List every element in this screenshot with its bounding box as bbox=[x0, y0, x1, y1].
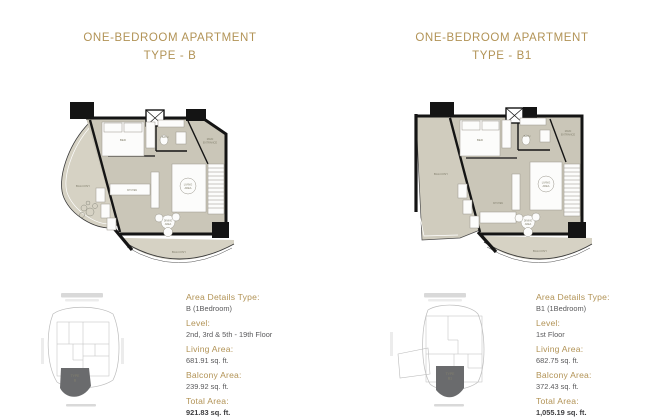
title-line1: ONE-BEDROOM APARTMENT bbox=[30, 30, 310, 48]
road-label-bar bbox=[41, 338, 44, 364]
detail-value: B (1Bedroom) bbox=[186, 304, 331, 313]
column-block bbox=[186, 109, 206, 121]
detail-value: 1st Floor bbox=[536, 330, 660, 339]
page-title-type-b1: ONE-BEDROOM APARTMENT TYPE - B1 bbox=[362, 30, 642, 66]
floor-plan-type-b1: BED BATH MAIN ENTRANCE LIVING AREA KITCH… bbox=[400, 92, 605, 284]
room-label-balcony-side: BALCONY bbox=[434, 172, 448, 176]
road-label-bar bbox=[66, 404, 96, 407]
room-label-living: LIVING bbox=[542, 181, 551, 185]
detail-group: Area Details Type: B1 (1Bedroom) bbox=[536, 292, 660, 313]
road-label-bar bbox=[434, 404, 464, 407]
road-label-bar bbox=[61, 293, 103, 298]
detail-group: Living Area: 682.75 sq. ft. bbox=[536, 344, 660, 365]
svg-text:AREA: AREA bbox=[165, 223, 172, 226]
detail-label: Balcony Area: bbox=[536, 370, 660, 380]
detail-group: Balcony Area: 372.43 sq. ft. bbox=[536, 370, 660, 391]
key-plan-type-b: TYPE B bbox=[33, 290, 133, 416]
detail-label: Total Area: bbox=[186, 396, 331, 406]
detail-label: Area Details Type: bbox=[186, 292, 331, 302]
title-line2: TYPE - B1 bbox=[362, 48, 642, 66]
brochure-page: ONE-BEDROOM APARTMENT TYPE - B bbox=[0, 0, 660, 418]
svg-text:ENTRANCE: ENTRANCE bbox=[561, 133, 576, 137]
detail-group-total: Total Area: 1,055.19 sq. ft. bbox=[536, 396, 660, 417]
area-details-type-b1: Area Details Type: B1 (1Bedroom) Level: … bbox=[536, 292, 660, 418]
detail-value: B1 (1Bedroom) bbox=[536, 304, 660, 313]
area-details-type-b: Area Details Type: B (1Bedroom) Level: 2… bbox=[186, 292, 331, 418]
road-label-bar bbox=[428, 299, 462, 302]
road-label-bar bbox=[390, 332, 393, 356]
detail-label: Living Area: bbox=[536, 344, 660, 354]
detail-value: 682.75 sq. ft. bbox=[536, 356, 660, 365]
title-line2: TYPE - B bbox=[30, 48, 310, 66]
column-block bbox=[70, 102, 94, 119]
detail-label: Area Details Type: bbox=[536, 292, 660, 302]
room-label-main-entrance: MAIN bbox=[565, 129, 572, 133]
title-line1: ONE-BEDROOM APARTMENT bbox=[362, 30, 642, 48]
room-label-bath: BATH bbox=[162, 135, 169, 139]
road-label-bar bbox=[424, 293, 466, 298]
detail-value: 239.92 sq. ft. bbox=[186, 382, 331, 391]
key-plan-type-b1: TYPE B1 bbox=[384, 290, 490, 416]
detail-group-total: Total Area: 921.83 sq. ft. bbox=[186, 396, 331, 417]
highlighted-unit: TYPE B1 bbox=[436, 366, 464, 397]
column-block bbox=[523, 107, 537, 118]
detail-group: Area Details Type: B (1Bedroom) bbox=[186, 292, 331, 313]
room-label-bath: BATH bbox=[524, 134, 531, 138]
keyplan-unit-label: TYPE bbox=[71, 374, 81, 378]
room-label-bed: BED bbox=[477, 138, 484, 142]
detail-value: 372.43 sq. ft. bbox=[536, 382, 660, 391]
detail-label: Level: bbox=[186, 318, 331, 328]
svg-text:AREA: AREA bbox=[542, 184, 549, 188]
detail-value: 1,055.19 sq. ft. bbox=[536, 408, 660, 417]
page-title-type-b: ONE-BEDROOM APARTMENT TYPE - B bbox=[30, 30, 310, 66]
svg-text:AREA: AREA bbox=[184, 186, 191, 190]
column-block bbox=[212, 222, 229, 238]
detail-value: 2nd, 3rd & 5th - 19th Floor bbox=[186, 330, 331, 339]
detail-value: 681.91 sq. ft. bbox=[186, 356, 331, 365]
svg-text:ENTRANCE: ENTRANCE bbox=[203, 141, 218, 145]
detail-label: Total Area: bbox=[536, 396, 660, 406]
room-label-kitchen: KITCHEN bbox=[127, 190, 137, 192]
room-label-balcony-bottom: BALCONY bbox=[533, 249, 547, 253]
detail-group: Level: 1st Floor bbox=[536, 318, 660, 339]
room-label-bed: BED bbox=[120, 138, 127, 142]
room-label-main-entrance: MAIN bbox=[207, 137, 214, 141]
svg-text:AREA: AREA bbox=[525, 223, 532, 226]
highlighted-unit: TYPE B bbox=[60, 368, 91, 397]
keyplan-unit-label: TYPE bbox=[446, 372, 456, 376]
detail-label: Level: bbox=[536, 318, 660, 328]
floor-plan-type-b: BED BATH MAIN ENTRANCE LIVING AREA KITCH… bbox=[52, 92, 238, 290]
detail-group: Balcony Area: 239.92 sq. ft. bbox=[186, 370, 331, 391]
balcony-bottom-shape bbox=[124, 238, 234, 260]
detail-label: Living Area: bbox=[186, 344, 331, 354]
column-block bbox=[568, 222, 586, 238]
detail-label: Balcony Area: bbox=[186, 370, 331, 380]
room-label-living: LIVING bbox=[184, 183, 193, 187]
column-block bbox=[430, 102, 454, 116]
room-label-balcony-bottom: BALCONY bbox=[172, 250, 186, 254]
detail-group: Level: 2nd, 3rd & 5th - 19th Floor bbox=[186, 318, 331, 339]
detail-value: 921.83 sq. ft. bbox=[186, 408, 331, 417]
road-label-bar bbox=[65, 299, 99, 302]
road-label-bar bbox=[121, 338, 124, 364]
balcony-bottom-shape bbox=[484, 236, 592, 260]
svg-text:B1: B1 bbox=[448, 377, 452, 381]
room-label-balcony-side: BALCONY bbox=[76, 184, 90, 188]
room-label-kitchen: KITCHEN bbox=[493, 203, 503, 205]
detail-group: Living Area: 681.91 sq. ft. bbox=[186, 344, 331, 365]
